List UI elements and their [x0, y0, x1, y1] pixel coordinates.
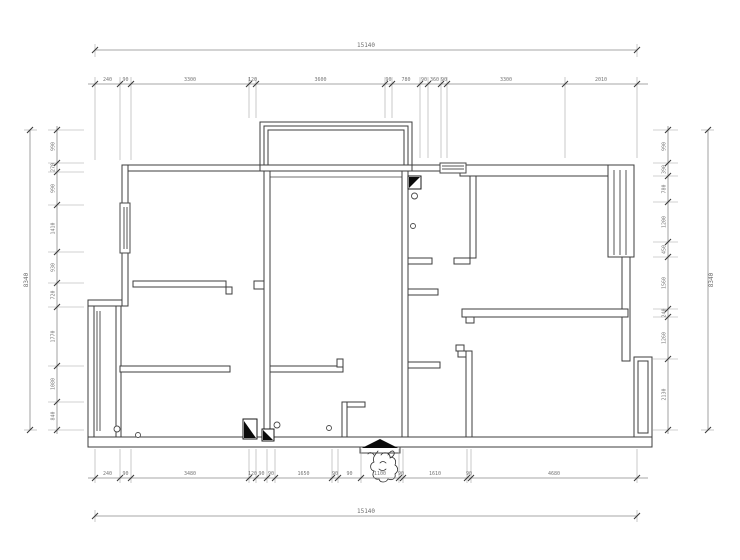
- door-jamb: [337, 359, 343, 367]
- dim-label: 1610: [429, 471, 441, 477]
- dim-label: 8340: [708, 272, 715, 287]
- dim-label: 360: [430, 77, 439, 83]
- dim-label: 1410: [51, 222, 57, 234]
- floor-plan-canvas: 2409033001203600907809036090330020101514…: [0, 0, 740, 560]
- dim-label: 2010: [595, 77, 607, 83]
- corner-window-right-top: [608, 165, 634, 257]
- dim-label: 390: [662, 165, 668, 174]
- dim-label: 90: [346, 471, 352, 477]
- door-jamb: [226, 287, 232, 294]
- wall-kitchen-divider: [470, 176, 476, 258]
- dim-label: 90: [268, 471, 274, 477]
- dim-label: 990: [51, 184, 57, 193]
- door-pivot-dot: [411, 224, 416, 229]
- dim-label: 990: [51, 142, 57, 151]
- dim-label: 1080: [51, 378, 57, 390]
- wall-top-left: [122, 165, 260, 171]
- door-pivot-dot: [114, 426, 120, 432]
- dim-label: 840: [51, 411, 57, 420]
- dim-label: 990: [662, 142, 668, 151]
- dim-label: 780: [401, 77, 410, 83]
- dim-label: 1650: [297, 471, 309, 477]
- dim-label: 240: [103, 77, 112, 83]
- balcony-left-window: [88, 306, 94, 437]
- dim-label: 90: [332, 471, 338, 477]
- dim-label: 1260: [662, 332, 668, 344]
- wall-interior-h4: [462, 309, 628, 317]
- dim-label: 90: [421, 77, 427, 83]
- dim-label: 2130: [662, 388, 668, 400]
- door-pivot-dot: [327, 426, 332, 431]
- wall-interior-v2: [402, 171, 408, 437]
- dim-label: 90: [398, 471, 404, 477]
- dim-label: 240: [103, 471, 112, 477]
- dim-label: 90: [466, 471, 472, 477]
- door-pivot-dot: [274, 422, 280, 428]
- dim-label: 3300: [184, 77, 196, 83]
- floor-plan-walls: [88, 122, 652, 447]
- dim-label: 1100: [374, 471, 386, 477]
- dim-label: 1770: [51, 330, 57, 342]
- dim-label: 15140: [357, 42, 375, 49]
- entry-figure-sketch-icon: [368, 451, 398, 482]
- dim-label: 90: [385, 77, 391, 83]
- wall-stub-h6: [408, 362, 440, 368]
- dim-label: 90: [258, 471, 264, 477]
- door-jamb: [456, 345, 464, 351]
- kitchen-corner-marker-icon: [408, 176, 421, 189]
- wall-interior-h3: [270, 366, 343, 372]
- door-jamb: [466, 317, 474, 323]
- dim-label: 120: [248, 471, 257, 477]
- dim-label: 90: [122, 77, 128, 83]
- utility-marker-small-icon: [262, 429, 274, 441]
- dim-label: 15140: [357, 508, 375, 515]
- door-pivot-dot: [136, 433, 141, 438]
- utility-marker-large-icon: [243, 419, 257, 439]
- floor-plan-drawing: 2409033001203600907809036090330020101514…: [0, 0, 740, 560]
- dim-label: 3300: [500, 77, 512, 83]
- dim-label: 8340: [23, 272, 30, 287]
- door-jamb: [254, 281, 264, 289]
- left-window: [120, 203, 130, 253]
- wall-bedroom-arm: [458, 351, 466, 357]
- wall-stub-h5: [408, 289, 438, 295]
- dim-label: 4680: [548, 471, 560, 477]
- dim-label: 90: [122, 471, 128, 477]
- dim-label: 720: [51, 290, 57, 299]
- wall-interior-v1: [264, 171, 270, 437]
- dim-label: 3600: [314, 77, 326, 83]
- dim-label: 450: [662, 245, 668, 254]
- wall-interior-h2: [120, 366, 230, 372]
- kitchen-window: [440, 163, 466, 173]
- dim-label: 120: [248, 77, 257, 83]
- dim-label: 90: [441, 77, 447, 83]
- wall-kitchen-return: [408, 258, 432, 264]
- dim-label: 1200: [662, 216, 668, 228]
- door-pivot-dot: [412, 193, 418, 199]
- dim-label: 780: [662, 184, 668, 193]
- wall-vestibule-h: [347, 402, 365, 407]
- dim-label: 240: [662, 308, 668, 317]
- dim-label: 3480: [184, 471, 196, 477]
- balcony-left-top-wall: [88, 300, 122, 306]
- wall-bedroom-left: [466, 351, 472, 437]
- wall-vestibule-v: [342, 402, 347, 437]
- dim-label: 1560: [662, 277, 668, 289]
- bay-window-right-inner: [638, 361, 648, 433]
- wall-top-right-thick: [460, 165, 608, 176]
- dim-label: 930: [51, 263, 57, 272]
- dim-label: 270: [51, 163, 57, 172]
- wall-interior-h1: [133, 281, 226, 287]
- wall-under-balcony: [260, 165, 412, 171]
- wall-kitchen-return: [454, 258, 470, 264]
